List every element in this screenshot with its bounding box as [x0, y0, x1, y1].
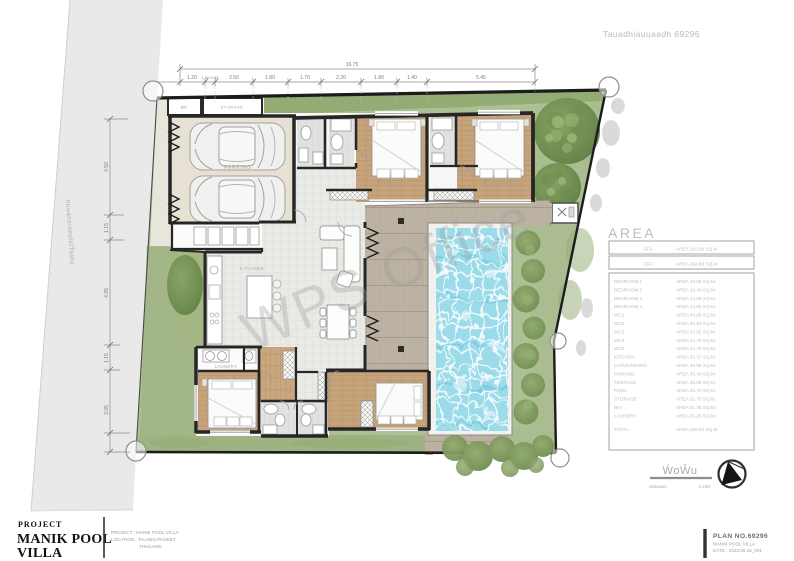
svg-text:1.80: 1.80 — [374, 75, 384, 81]
svg-text:BEDROOM 4: BEDROOM 4 — [614, 304, 643, 309]
svg-text:unsnaou: unsnaou — [649, 484, 667, 489]
svg-text:AREA 269.00 SQ.M: AREA 269.00 SQ.M — [676, 247, 718, 252]
svg-text:5.45: 5.45 — [476, 75, 486, 81]
svg-text:4.95: 4.95 — [104, 288, 110, 298]
svg-text:KITCHEN: KITCHEN — [614, 355, 635, 360]
svg-text:2.50: 2.50 — [229, 75, 239, 81]
svg-text:4.50: 4.50 — [104, 162, 110, 172]
svg-text:ẂoŴu: ẂoŴu — [663, 464, 698, 477]
svg-text:BEDROOM 3: BEDROOM 3 — [614, 296, 643, 301]
svg-text:THAILAND: THAILAND — [139, 544, 162, 549]
svg-text:BEDROOM 1: BEDROOM 1 — [378, 181, 411, 186]
svg-text:AREA 03.26 SQ.M.: AREA 03.26 SQ.M. — [676, 313, 716, 318]
svg-text:DATE : 2023.09.16_001: DATE : 2023.09.16_001 — [713, 548, 762, 553]
svg-text:STORAGE: STORAGE — [614, 397, 637, 402]
svg-text:AREA 02.70 SQ.M.: AREA 02.70 SQ.M. — [676, 397, 716, 402]
svg-text:WC3: WC3 — [614, 329, 625, 334]
svg-text:LOCATION : TALANG,PHUKET: LOCATION : TALANG,PHUKET — [111, 537, 176, 542]
svg-text:1.15: 1.15 — [104, 353, 110, 363]
svg-text:LIVING/DINING: LIVING/DINING — [614, 363, 647, 368]
svg-text:KITCHEN: KITCHEN — [240, 266, 264, 271]
svg-text:1.15: 1.15 — [104, 223, 110, 233]
svg-text:BEDROOM 2: BEDROOM 2 — [483, 181, 516, 186]
svg-text:AREA 40.70 SQ.M.: AREA 40.70 SQ.M. — [676, 388, 716, 393]
svg-text:AREA 294.98 SQ.M: AREA 294.98 SQ.M — [676, 262, 718, 267]
svg-text:WC2: WC2 — [614, 321, 625, 326]
svg-text:BEDROOM 1: BEDROOM 1 — [614, 279, 643, 284]
svg-text:AREA 04.75 SQ.M.: AREA 04.75 SQ.M. — [676, 338, 716, 343]
svg-text:WC5: WC5 — [614, 346, 625, 351]
svg-text:1.20: 1.20 — [187, 75, 197, 81]
svg-text:AREA 03.25 SQ.M.: AREA 03.25 SQ.M. — [676, 413, 716, 418]
svg-text:PARKING: PARKING — [224, 165, 252, 171]
svg-text:CFA :: CFA : — [644, 262, 655, 267]
svg-text:Tauadhiauuaadh 69296: Tauadhiauuaadh 69296 — [603, 29, 700, 39]
svg-text:AREA 20.37 SQ.M.: AREA 20.37 SQ.M. — [676, 355, 716, 360]
svg-text:AREA 04.75 SQ.M.: AREA 04.75 SQ.M. — [676, 346, 716, 351]
svg-text:POOL: POOL — [614, 388, 627, 393]
svg-text:3.05: 3.05 — [104, 405, 110, 415]
svg-text:TOTAL:: TOTAL: — [614, 427, 630, 432]
svg-text:BEDROOM 2: BEDROOM 2 — [614, 287, 643, 292]
svg-text:AREA 03.52 SQ.M.: AREA 03.52 SQ.M. — [676, 329, 716, 334]
svg-text:1.70: 1.70 — [300, 75, 310, 81]
svg-text:AREA 38.98 SQ.M.: AREA 38.98 SQ.M. — [676, 363, 716, 368]
svg-text:WC1: WC1 — [614, 313, 625, 318]
svg-text:TERRACE: TERRACE — [614, 380, 636, 385]
svg-text:AREA 03.53 SQ.M.: AREA 03.53 SQ.M. — [676, 321, 716, 326]
svg-text:1.40: 1.40 — [407, 75, 417, 81]
svg-text:STORAGE: STORAGE — [221, 106, 244, 110]
svg-text:1.80: 1.80 — [265, 75, 275, 81]
svg-text:PARKING: PARKING — [614, 371, 635, 376]
svg-text:AREA 14.58 SQ.M.: AREA 14.58 SQ.M. — [676, 296, 716, 301]
svg-text:16.75: 16.75 — [346, 62, 359, 68]
svg-text:GFA :: GFA : — [643, 247, 655, 252]
svg-text:2.20: 2.20 — [336, 75, 346, 81]
svg-text:AREA 269.00 SQ.M: AREA 269.00 SQ.M — [676, 427, 718, 432]
svg-text:1:100: 1:100 — [699, 484, 711, 489]
svg-text:PLAN NO.69296: PLAN NO.69296 — [713, 533, 768, 540]
svg-text:PROJECT: PROJECT — [18, 520, 62, 529]
svg-text:VILLA: VILLA — [17, 546, 63, 561]
svg-text:AREA: AREA — [608, 225, 656, 241]
svg-text:AREA 01.35 SQ.M.: AREA 01.35 SQ.M. — [676, 405, 716, 410]
svg-text:LAUNDRY: LAUNDRY — [614, 413, 637, 418]
svg-text:AREA 18.59 SQ.M.: AREA 18.59 SQ.M. — [676, 279, 716, 284]
svg-text:1.40 0.50: 1.40 0.50 — [202, 75, 219, 80]
svg-text:MANIK POOL VILLA: MANIK POOL VILLA — [713, 542, 756, 547]
svg-text:AREA 14.00 SQ.M.: AREA 14.00 SQ.M. — [676, 304, 716, 309]
svg-text:AREA 35.40 SQ.M.: AREA 35.40 SQ.M. — [676, 371, 716, 376]
svg-text:MANIK POOL: MANIK POOL — [17, 532, 112, 547]
svg-text:LAUNDRY: LAUNDRY — [215, 364, 238, 369]
svg-text:BIN: BIN — [181, 106, 188, 110]
svg-text:PROJECT : MANIK POOL VILLA: PROJECT : MANIK POOL VILLA — [111, 530, 179, 535]
svg-text:BIN: BIN — [614, 405, 622, 410]
svg-text:AREA 19.40 SQ.M.: AREA 19.40 SQ.M. — [676, 287, 716, 292]
svg-text:AREA 35.88 SQ.M.: AREA 35.88 SQ.M. — [676, 380, 716, 385]
svg-text:WC4: WC4 — [614, 338, 625, 343]
